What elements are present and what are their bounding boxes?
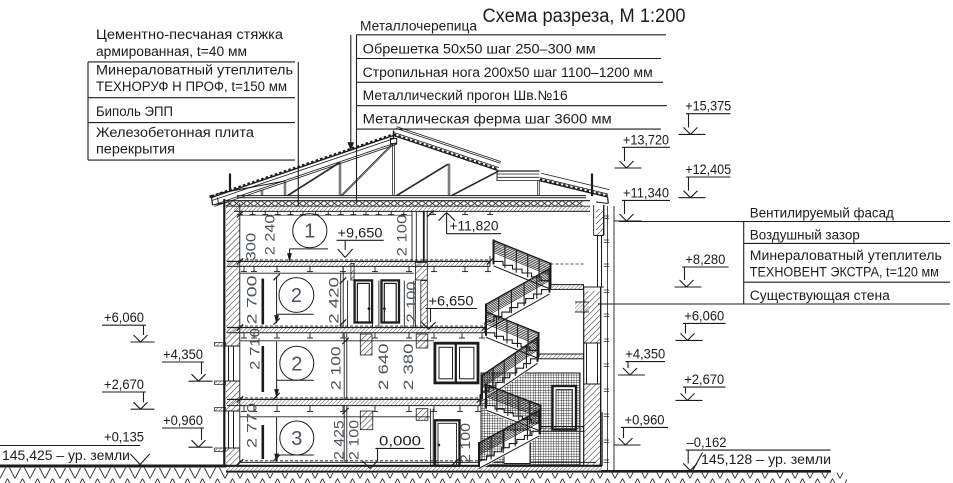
svg-text:+9,650: +9,650 <box>338 225 383 241</box>
svg-text:2 100: 2 100 <box>346 420 362 460</box>
svg-text:2 420: 2 420 <box>326 277 342 324</box>
svg-text:Минераловатный утеплитель: Минераловатный утеплитель <box>750 248 942 263</box>
svg-text:ТЕХНОВЕНТ ЭКСТРА, t=120 мм: ТЕХНОВЕНТ ЭКСТРА, t=120 мм <box>750 264 939 279</box>
svg-text:Вентилируемый фасад: Вентилируемый фасад <box>750 206 894 221</box>
svg-text:+2,670: +2,670 <box>684 372 724 388</box>
svg-text:145,425 – ур. земли: 145,425 – ур. земли <box>2 448 130 463</box>
svg-text:+0,960: +0,960 <box>163 413 203 429</box>
svg-text:армированная, t=40 мм: армированная, t=40 мм <box>96 44 247 59</box>
svg-text:2: 2 <box>291 353 302 375</box>
svg-text:1: 1 <box>304 221 315 243</box>
svg-text:2 700: 2 700 <box>243 275 259 324</box>
svg-text:+6,060: +6,060 <box>104 310 144 326</box>
svg-text:2 100: 2 100 <box>327 346 343 390</box>
svg-text:2 100: 2 100 <box>394 214 410 256</box>
svg-text:Минераловатный утеплитель: Минераловатный утеплитель <box>96 63 293 78</box>
svg-text:Стропильная нога 200х50 шаг 11: Стропильная нога 200х50 шаг 1100–1200 мм <box>363 65 653 80</box>
svg-text:+8,280: +8,280 <box>685 252 725 268</box>
svg-text:2 240: 2 240 <box>262 214 278 255</box>
svg-text:–0,162: –0,162 <box>687 435 727 451</box>
svg-text:Существующая стена: Существующая стена <box>750 288 891 303</box>
svg-text:ТЕХНОРУФ Н ПРОФ, t=150 мм: ТЕХНОРУФ Н ПРОФ, t=150 мм <box>96 79 287 94</box>
svg-text:+4,350: +4,350 <box>625 347 665 363</box>
svg-text:0,000: 0,000 <box>379 433 421 449</box>
svg-text:+0,135: +0,135 <box>104 430 144 446</box>
svg-text:Схема разреза, М 1:200: Схема разреза, М 1:200 <box>483 6 686 27</box>
svg-text:перекрытия: перекрытия <box>96 142 175 157</box>
svg-text:Металлический прогон Шв.№16: Металлический прогон Шв.№16 <box>363 88 568 103</box>
svg-text:+11,820: +11,820 <box>450 219 499 235</box>
svg-text:2 425: 2 425 <box>331 420 347 460</box>
svg-text:+12,405: +12,405 <box>685 162 731 178</box>
svg-text:+15,375: +15,375 <box>685 99 731 115</box>
svg-text:2: 2 <box>291 285 302 307</box>
svg-text:2 100: 2 100 <box>403 281 419 322</box>
svg-text:2 380: 2 380 <box>400 343 416 390</box>
svg-text:Воздушный зазор: Воздушный зазор <box>750 228 860 243</box>
svg-text:Металлочерепица: Металлочерепица <box>360 19 477 34</box>
svg-text:300: 300 <box>242 233 258 261</box>
svg-text:Цементно-песчаная стяжка: Цементно-песчаная стяжка <box>96 27 284 42</box>
svg-text:+6,650: +6,650 <box>429 294 474 310</box>
svg-text:Металлическая ферма шаг 3600 м: Металлическая ферма шаг 3600 мм <box>363 112 612 127</box>
svg-text:2 710: 2 710 <box>247 328 263 370</box>
svg-text:+4,350: +4,350 <box>163 347 203 363</box>
svg-text:2 100: 2 100 <box>457 423 473 463</box>
svg-text:+6,060: +6,060 <box>684 308 724 324</box>
svg-text:+0,960: +0,960 <box>625 412 665 428</box>
svg-text:145,128 – ур. земли: 145,128 – ур. земли <box>701 452 831 467</box>
svg-text:+2,670: +2,670 <box>104 377 144 393</box>
svg-text:+13,720: +13,720 <box>623 132 669 148</box>
svg-text:Биполь ЭПП: Биполь ЭПП <box>96 104 173 119</box>
svg-text:Обрешетка 50х50 шаг 250–300 мм: Обрешетка 50х50 шаг 250–300 мм <box>363 42 596 57</box>
svg-text:2 640: 2 640 <box>375 343 391 390</box>
svg-text:2 770: 2 770 <box>244 403 260 448</box>
svg-text:+11,340: +11,340 <box>623 185 669 201</box>
svg-text:3: 3 <box>291 428 302 450</box>
svg-text:Железобетонная плита: Железобетонная плита <box>96 125 255 140</box>
